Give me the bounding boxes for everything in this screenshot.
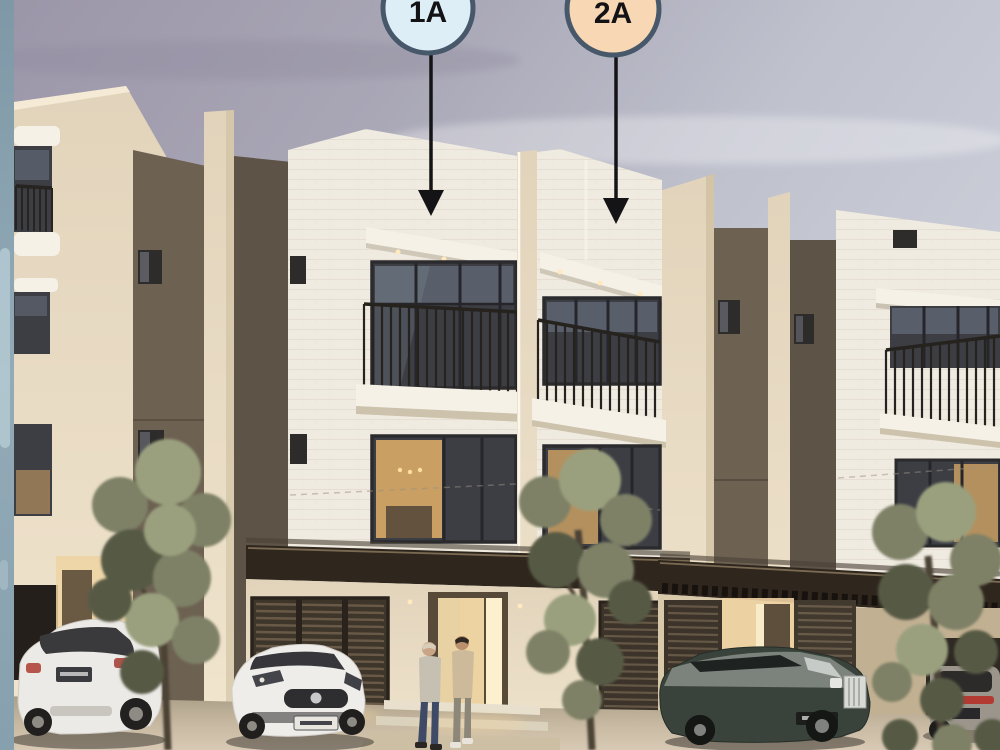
torso bbox=[452, 650, 474, 699]
lower-window bbox=[372, 436, 516, 542]
headlight bbox=[830, 678, 842, 688]
car-white-sedan bbox=[226, 644, 374, 750]
marker-label: 1A bbox=[409, 0, 447, 29]
strip-glyph bbox=[0, 248, 10, 448]
grille bbox=[844, 676, 866, 708]
render-image: 1A 2A bbox=[0, 0, 1000, 750]
marker-label: 2A bbox=[594, 0, 632, 30]
leg bbox=[431, 702, 439, 745]
car-dark-sedan bbox=[660, 647, 870, 750]
leg bbox=[464, 698, 471, 739]
balcony-railing bbox=[16, 186, 52, 232]
strip-glyph bbox=[0, 560, 8, 590]
ledge bbox=[14, 126, 60, 146]
downlight bbox=[638, 292, 643, 297]
ledge bbox=[14, 278, 58, 292]
attic-window bbox=[893, 230, 917, 248]
downlight bbox=[598, 281, 603, 286]
torso bbox=[419, 656, 441, 703]
furniture-silhouette bbox=[386, 506, 432, 538]
downlight bbox=[396, 250, 401, 255]
scene-svg: 1A 2A bbox=[0, 0, 1000, 750]
ledge bbox=[14, 232, 60, 256]
border-strip bbox=[0, 0, 14, 750]
small-window bbox=[290, 256, 306, 284]
leg bbox=[453, 698, 461, 743]
downlight bbox=[558, 270, 563, 275]
brand-badge bbox=[311, 693, 322, 704]
taillight bbox=[26, 663, 41, 673]
small-window bbox=[290, 434, 307, 464]
